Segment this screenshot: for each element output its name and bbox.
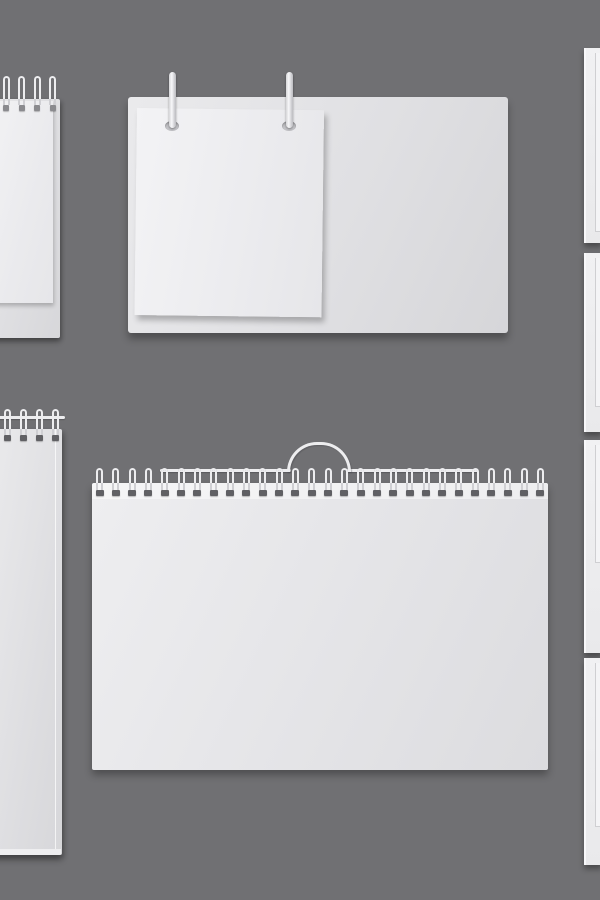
- spiral-loop-icon: [325, 468, 332, 496]
- spiral-loop-icon: [472, 468, 479, 496]
- spiral-loop-icon: [406, 468, 413, 496]
- binding-hole-cap: [50, 105, 56, 111]
- binding-hole-cap: [275, 490, 283, 496]
- wire-loop-icon: [439, 468, 446, 483]
- binding-hole-cap: [340, 490, 348, 496]
- wire-legs-icon: [488, 483, 495, 490]
- binding-hole-cap: [259, 490, 267, 496]
- binding-hole-cap: [536, 490, 544, 496]
- binding-hole-cap: [193, 490, 201, 496]
- notepad-top-page: [0, 101, 53, 303]
- spiral-loop-icon: [423, 468, 430, 496]
- wire-loop-icon: [112, 468, 119, 483]
- wire-legs-icon: [194, 483, 201, 490]
- spiral-loop-icon: [227, 468, 234, 496]
- cropped-board: [584, 48, 600, 243]
- wire-legs-icon: [537, 483, 544, 490]
- spiral-loop-icon: [129, 468, 136, 496]
- wire-loop-icon: [194, 468, 201, 483]
- wire-loop-icon: [4, 409, 11, 429]
- binding-hole-cap: [177, 490, 185, 496]
- wire-loop-icon: [521, 468, 528, 483]
- cropped-board: [584, 440, 600, 653]
- wire-legs-icon: [145, 483, 152, 490]
- wire-legs-icon: [521, 483, 528, 490]
- binding-hole-cap: [406, 490, 414, 496]
- binding-hole-cap: [112, 490, 120, 496]
- spiral-loop-icon: [276, 468, 283, 496]
- wire-loop-icon: [34, 76, 41, 99]
- calendar-blank-page: [134, 108, 324, 317]
- spiral-loop-icon: [292, 468, 299, 496]
- wire-loop-icon: [129, 468, 136, 483]
- notepad-body: [0, 429, 62, 855]
- wire-loop-icon: [374, 468, 381, 483]
- board-page-corner: [595, 663, 600, 827]
- binding-hole-cap: [52, 435, 59, 441]
- metal-pin-icon: [169, 72, 176, 128]
- binding-hole-cap: [324, 490, 332, 496]
- spiral-loop-icon: [521, 468, 528, 496]
- spiral-loop-icon: [3, 76, 10, 111]
- spiral-loop-icon: [374, 468, 381, 496]
- spiral-loop-icon: [210, 468, 217, 496]
- binding-hole-cap: [4, 435, 11, 441]
- wire-loop-icon: [178, 468, 185, 483]
- spiral-loop-icon: [34, 76, 41, 111]
- spiral-loop-icon: [52, 409, 59, 441]
- wire-legs-icon: [243, 483, 250, 490]
- wire-loop-icon: [423, 468, 430, 483]
- wire-legs-icon: [472, 483, 479, 490]
- binding-hole-cap: [19, 105, 25, 111]
- binding-hole-cap: [242, 490, 250, 496]
- binding-hole-cap: [34, 105, 40, 111]
- spiral-loop-icon: [20, 409, 27, 441]
- spiral-loop-icon: [357, 468, 364, 496]
- wire-loop-icon: [455, 468, 462, 483]
- wire-legs-icon: [439, 483, 446, 490]
- wire-loop-icon: [161, 468, 168, 483]
- wire-loop-icon: [325, 468, 332, 483]
- binding-hole-cap: [96, 490, 104, 496]
- spiral-loop-icon: [96, 468, 103, 496]
- wire-legs-icon: [178, 483, 185, 490]
- wire-loop-icon: [210, 468, 217, 483]
- binding-hole-cap: [389, 490, 397, 496]
- binding-hole-cap: [226, 490, 234, 496]
- wire-legs-icon: [112, 483, 119, 490]
- binding-hole-cap: [520, 490, 528, 496]
- wire-legs-icon: [210, 483, 217, 490]
- wire-loop-icon: [406, 468, 413, 483]
- wire-loop-icon: [145, 468, 152, 483]
- wire-legs-icon: [374, 483, 381, 490]
- wire-loop-icon: [292, 468, 299, 483]
- binding-hole-cap: [438, 490, 446, 496]
- binding-hole-cap: [504, 490, 512, 496]
- spiral-loop-icon: [243, 468, 250, 496]
- spiral-loop-icon: [178, 468, 185, 496]
- binding-hole-cap: [291, 490, 299, 496]
- spiral-loop-icon: [488, 468, 495, 496]
- binding-hole-cap: [36, 435, 43, 441]
- spiral-loop-icon: [194, 468, 201, 496]
- binding-hole-cap: [161, 490, 169, 496]
- spiral-loop-icon: [308, 468, 315, 496]
- wire-legs-icon: [292, 483, 299, 490]
- wire-loop-icon: [52, 409, 59, 429]
- cropped-board: [584, 658, 600, 865]
- wire-legs-icon: [129, 483, 136, 490]
- binding-hole-cap: [422, 490, 430, 496]
- wire-loop-icon: [18, 76, 25, 99]
- wire-legs-icon: [259, 483, 266, 490]
- wire-loop-icon: [357, 468, 364, 483]
- spiral-loop-icon: [341, 468, 348, 496]
- binding-hole-cap: [487, 490, 495, 496]
- wire-legs-icon: [357, 483, 364, 490]
- board-page-corner: [595, 445, 600, 563]
- spiral-loop-icon: [537, 468, 544, 496]
- wire-legs-icon: [504, 483, 511, 490]
- wire-loop-icon: [472, 468, 479, 483]
- wire-loop-icon: [3, 76, 10, 99]
- binding-hole-cap: [3, 105, 9, 111]
- spiral-loop-icon: [161, 468, 168, 496]
- wire-loop-icon: [504, 468, 511, 483]
- wire-legs-icon: [227, 483, 234, 490]
- wire-loop-icon: [20, 409, 27, 429]
- wire-legs-icon: [455, 483, 462, 490]
- wire-loop-icon: [49, 76, 56, 99]
- binding-hole-cap: [471, 490, 479, 496]
- wire-loop-icon: [537, 468, 544, 483]
- metal-pin-icon: [286, 72, 293, 128]
- wire-legs-icon: [423, 483, 430, 490]
- wire-legs-icon: [96, 483, 103, 490]
- spiral-loop-icon: [18, 76, 25, 111]
- wire-loop-icon: [243, 468, 250, 483]
- wire-legs-icon: [390, 483, 397, 490]
- binding-hole-cap: [357, 490, 365, 496]
- wire-loop-icon: [96, 468, 103, 483]
- wire-loop-icon: [259, 468, 266, 483]
- spiral-loop-icon: [145, 468, 152, 496]
- spiral-loop-icon: [36, 409, 43, 441]
- binding-hole-cap: [373, 490, 381, 496]
- mockup-scene: [0, 0, 600, 900]
- wire-loop-icon: [341, 468, 348, 483]
- wire-loop-icon: [276, 468, 283, 483]
- wire-legs-icon: [341, 483, 348, 490]
- spiral-loop-icon: [390, 468, 397, 496]
- wire-legs-icon: [325, 483, 332, 490]
- spiral-loop-icon: [259, 468, 266, 496]
- wire-loop-icon: [227, 468, 234, 483]
- binding-hole-cap: [128, 490, 136, 496]
- wire-legs-icon: [161, 483, 168, 490]
- binding-hole-cap: [210, 490, 218, 496]
- binding-hole-cap: [308, 490, 316, 496]
- binding-hole-cap: [20, 435, 27, 441]
- calendar-body: [92, 483, 548, 770]
- spiral-loop-icon: [455, 468, 462, 496]
- board-page-corner: [595, 53, 600, 232]
- wire-loop-icon: [36, 409, 43, 429]
- spiral-loop-icon: [439, 468, 446, 496]
- spiral-loop-icon: [112, 468, 119, 496]
- wire-loop-icon: [488, 468, 495, 483]
- board-page-corner: [595, 258, 600, 407]
- wire-loop-icon: [390, 468, 397, 483]
- spiral-loop-icon: [49, 76, 56, 111]
- wire-legs-icon: [276, 483, 283, 490]
- spiral-loop-icon: [4, 409, 11, 441]
- binding-hole-cap: [455, 490, 463, 496]
- cropped-board: [584, 253, 600, 432]
- wire-legs-icon: [308, 483, 315, 490]
- wire-loop-icon: [308, 468, 315, 483]
- binding-hole-cap: [144, 490, 152, 496]
- wire-legs-icon: [406, 483, 413, 490]
- spiral-loop-icon: [504, 468, 511, 496]
